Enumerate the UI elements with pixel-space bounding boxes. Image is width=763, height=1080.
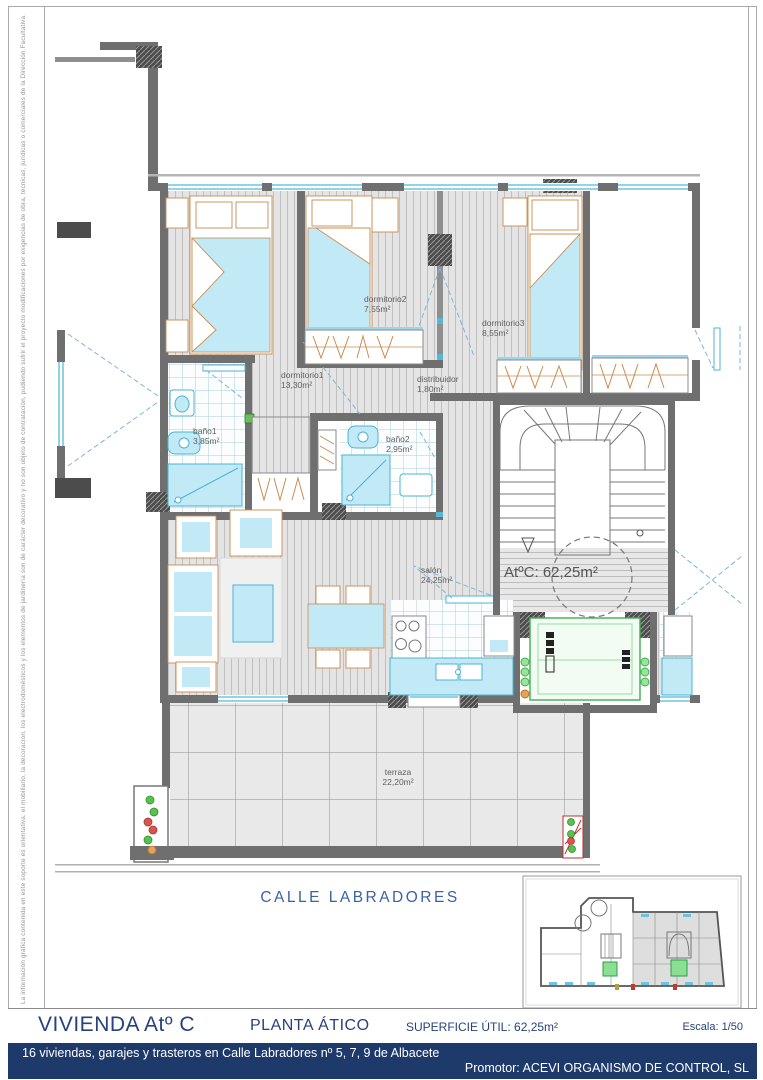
street-label: CALLE LABRADORES (250, 889, 470, 907)
margin-disclaimer: La información gráfica contenida en este… (20, 19, 27, 1004)
room-label-bano1: baño1 3,85m² (193, 426, 219, 446)
floor-plan-drawing (0, 0, 763, 1080)
drawing-sheet: La información gráfica contenida en este… (0, 0, 763, 1080)
useful-area: SUPERFICIE ÚTIL: 62,25m² (406, 1020, 558, 1034)
title-block-row2: 16 viviendas, garajes y trasteros en Cal… (8, 1043, 757, 1079)
title-block: VIVIENDA Atº C PLANTA ÁTICO SUPERFICIE Ú… (8, 1008, 757, 1079)
project-description: 16 viviendas, garajes y trasteros en Cal… (22, 1046, 439, 1060)
room-label-bano2: baño2 2,95m² (386, 434, 412, 454)
promoter-label: Promotor: ACEVI ORGANISMO DE CONTROL, SL (465, 1061, 749, 1075)
unit-area-label: AtºC: 62,25m² (504, 564, 598, 581)
room-label-terraza: terraza 22,20m² (368, 767, 428, 787)
exterior-walls (55, 42, 162, 498)
room-label-dormitorio3: dormitorio3 8,55m² (482, 318, 525, 338)
room-label-dormitorio2: dormitorio2 7,55m² (364, 294, 407, 314)
room-label-salon: salón 24,25m² (421, 565, 452, 585)
room-label-distribuidor: distribuidor 1,80m² (417, 374, 459, 394)
hall-closet (252, 417, 336, 500)
scale-label: Escala: 1/50 (682, 1021, 743, 1033)
key-plan (523, 876, 741, 1008)
dwelling-title: VIVIENDA Atº C (38, 1013, 195, 1037)
title-block-row1: VIVIENDA Atº C PLANTA ÁTICO SUPERFICIE Ú… (8, 1008, 757, 1043)
plan-name: PLANTA ÁTICO (250, 1017, 370, 1035)
elevator (513, 612, 657, 713)
room-label-dormitorio1: dormitorio1 13,30m² (281, 370, 324, 390)
